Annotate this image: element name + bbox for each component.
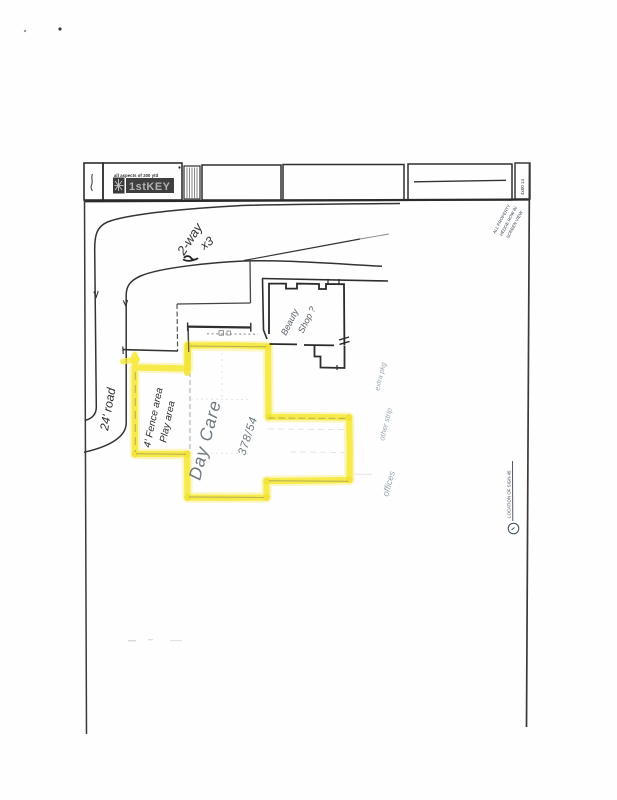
svg-text:4x00 14: 4x00 14 xyxy=(520,178,525,195)
svg-text:LOCATION OF SIGN 45: LOCATION OF SIGN 45 xyxy=(507,470,512,518)
svg-text:all aspects of 200 ytd: all aspects of 200 ytd xyxy=(114,173,159,178)
svg-text:1stKEY: 1stKEY xyxy=(129,181,171,193)
